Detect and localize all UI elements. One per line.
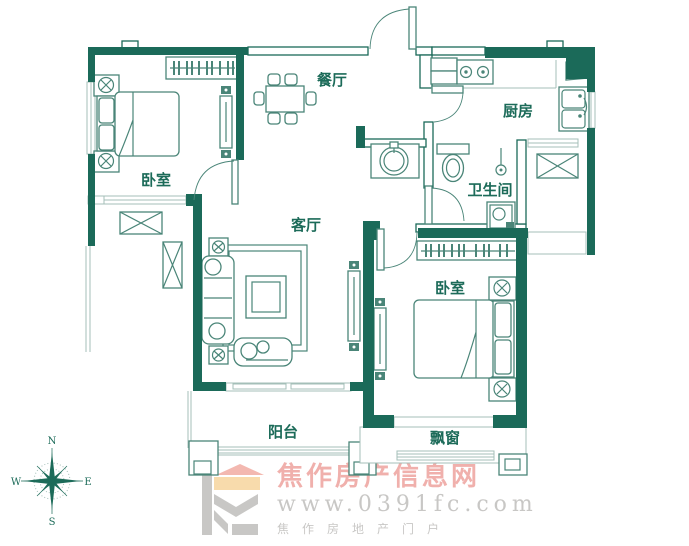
room-label-dining: 餐厅 [317,71,347,89]
room-label-kitchen: 厨房 [503,102,533,120]
shower-icon [496,148,506,175]
window-icon [528,139,578,147]
bed-icon [414,300,514,378]
radiator-icon [348,261,360,351]
compass-rose-icon: N S W E [11,436,92,528]
room-label-living: 客厅 [290,216,321,234]
chaise-icon [234,338,292,366]
room-label-bedroom2: 卧室 [435,279,465,297]
compass-south-label: S [49,517,56,528]
bay-window-opening [394,417,494,428]
kitchen-sink-icon [559,87,589,131]
side-table-icon [209,346,228,364]
nightstand-icon [94,75,119,96]
side-table-icon [209,238,228,256]
coffee-table-icon [246,276,286,318]
nightstand-icon [489,378,516,401]
window-icon [104,196,186,204]
entry-door-swing-icon [370,7,416,49]
bed-icon [97,92,179,156]
door-swing-icon [377,229,417,270]
washing-machine-icon [487,202,515,231]
radiator-icon [220,86,232,158]
compass-west-label: W [11,477,22,488]
door-swing-icon [432,86,463,122]
wardrobe-icon [417,241,519,260]
nightstand-icon [489,277,516,300]
toilet-icon [437,144,469,182]
ac-platform-icon [86,212,182,352]
wardrobe-icon [166,57,238,79]
room-label-bathroom: 卫生间 [467,181,512,199]
floor-plan-canvas: 卧室 餐厅 厨房 卫生间 客厅 卧室 阳台 飘窗 N S W E [0,0,689,546]
room-label-balcony: 阳台 [268,423,298,441]
sliding-door-icon [226,383,351,391]
room-label-bedroom1: 卧室 [141,171,171,189]
floor-plan: 焦作房产信息网 www.0391fc.com 焦作房地产门户 [0,0,689,546]
washbasin-icon [371,142,419,178]
compass-east-label: E [84,477,91,488]
duct-shaft-icon [528,154,586,254]
sofa-icon [202,256,234,344]
door-swing-icon [425,186,464,224]
radiator-icon [374,298,386,380]
kitchen-cabinet-icon [431,58,457,84]
nightstand-icon [94,151,119,172]
room-label-bay-window: 飘窗 [430,429,460,447]
dining-table-icon [254,74,316,124]
compass-north-label: N [48,436,57,447]
